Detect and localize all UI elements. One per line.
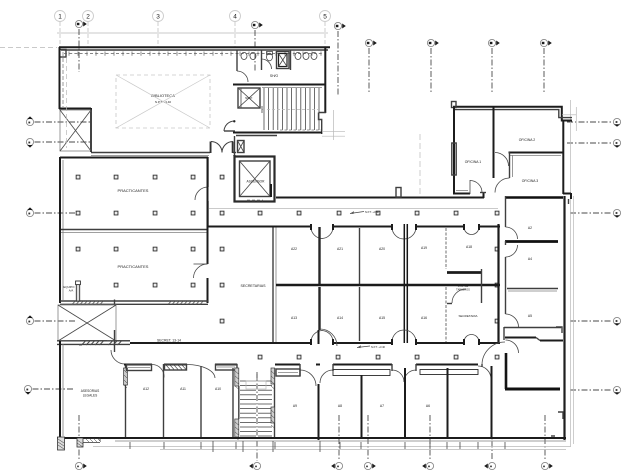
svg-text:A19: A19 (421, 246, 427, 250)
svg-text:A6: A6 (426, 404, 430, 408)
svg-text:ASCENSOR: ASCENSOR (247, 180, 266, 184)
svg-text:ASESORIAS: ASESORIAS (81, 389, 99, 393)
svg-text:N.P.T. +3.40: N.P.T. +3.40 (371, 345, 386, 349)
svg-text:A20: A20 (379, 247, 385, 251)
svg-text:3: 3 (156, 14, 160, 21)
svg-text:SH/O: SH/O (270, 74, 279, 78)
svg-text:A7: A7 (380, 404, 384, 408)
svg-text:A5: A5 (528, 314, 532, 318)
svg-text:LEGALES: LEGALES (83, 394, 98, 398)
svg-text:A8: A8 (338, 404, 342, 408)
svg-text:1: 1 (58, 14, 62, 21)
svg-text:OFICINA 1: OFICINA 1 (465, 160, 482, 164)
svg-text:A18: A18 (466, 245, 472, 249)
svg-text:A10: A10 (215, 387, 221, 391)
svg-text:A11: A11 (180, 387, 186, 391)
svg-text:A13: A13 (291, 316, 297, 320)
svg-text:A12: A12 (143, 387, 149, 391)
svg-text:A2: A2 (528, 226, 532, 230)
svg-text:MONT.: MONT. (245, 97, 253, 100)
svg-text:2: 2 (86, 14, 90, 21)
svg-text:A9: A9 (293, 404, 297, 408)
svg-text:CTO. DE: CTO. DE (458, 284, 469, 288)
svg-text:A16: A16 (421, 316, 427, 320)
svg-text:PRACTICANTES: PRACTICANTES (118, 188, 149, 193)
svg-text:PRACTICANTES: PRACTICANTES (118, 264, 149, 269)
svg-text:5: 5 (323, 14, 327, 21)
svg-text:A15: A15 (379, 316, 385, 320)
svg-text:SECRETARIA: SECRETARIA (459, 314, 478, 318)
svg-text:A22: A22 (291, 247, 297, 251)
svg-text:A4: A4 (528, 257, 532, 261)
svg-text:4: 4 (233, 14, 237, 21)
svg-text:SECRETARIAS: SECRETARIAS (240, 284, 266, 288)
svg-text:A14: A14 (337, 316, 343, 320)
svg-text:OFICINA 2: OFICINA 2 (519, 138, 536, 142)
svg-text:SECRET. 13-14: SECRET. 13-14 (157, 339, 181, 343)
svg-text:N.P.T. +3.40: N.P.T. +3.40 (365, 210, 380, 214)
svg-text:A/A: A/A (69, 289, 74, 293)
svg-text:OFICINA 3: OFICINA 3 (522, 179, 539, 183)
svg-text:A21: A21 (337, 247, 343, 251)
svg-text:N.P.T. +3.40: N.P.T. +3.40 (155, 100, 172, 104)
